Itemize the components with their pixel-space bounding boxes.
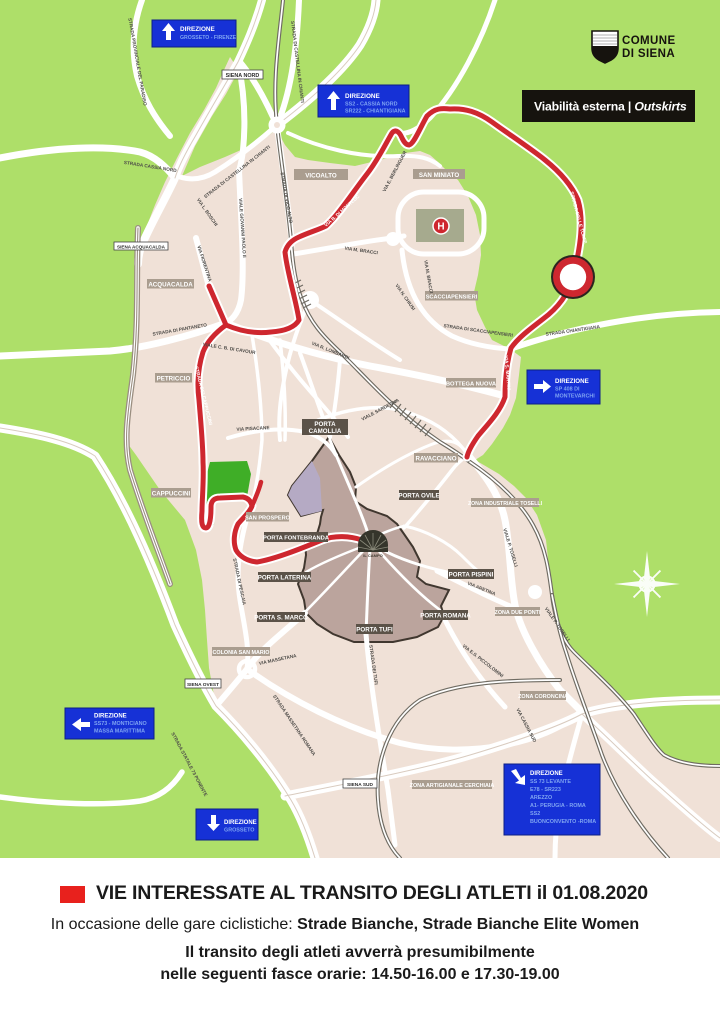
svg-text:A1- PERUGIA - ROMA: A1- PERUGIA - ROMA xyxy=(530,803,586,809)
svg-text:ZONA CORONCINA: ZONA CORONCINA xyxy=(518,694,568,700)
svg-text:COLONIA SAN MARIO: COLONIA SAN MARIO xyxy=(213,650,270,656)
svg-text:PORTA S. MARCO: PORTA S. MARCO xyxy=(254,615,308,622)
svg-text:PETRICCIO: PETRICCIO xyxy=(157,376,191,383)
svg-text:GROSSETO - FIRENZE: GROSSETO - FIRENZE xyxy=(180,35,237,41)
svg-text:MASSA MARITTIMA: MASSA MARITTIMA xyxy=(94,729,145,735)
svg-text:PORTA: PORTA xyxy=(314,421,336,428)
svg-text:GROSSETO: GROSSETO xyxy=(224,828,254,834)
svg-text:SP 408 DI: SP 408 DI xyxy=(555,387,580,393)
svg-text:Viabilità esterna | Outskirts: Viabilità esterna | Outskirts xyxy=(534,100,687,114)
svg-text:DIREZIONE: DIREZIONE xyxy=(345,93,381,100)
svg-text:E78 - SR223: E78 - SR223 xyxy=(530,787,561,793)
svg-text:SCACCIAPENSIERI: SCACCIAPENSIERI xyxy=(426,295,478,301)
svg-text:SS2 - CASSIA NORD: SS2 - CASSIA NORD xyxy=(345,102,398,108)
svg-text:DI SIENA: DI SIENA xyxy=(622,48,675,60)
svg-text:SIENA NORD: SIENA NORD xyxy=(226,73,260,79)
svg-text:DIREZIONE: DIREZIONE xyxy=(530,771,563,777)
svg-text:MONTEVARCHI: MONTEVARCHI xyxy=(555,394,595,400)
svg-text:PORTA FONTEBRANDA: PORTA FONTEBRANDA xyxy=(263,536,330,542)
svg-text:SIENA SUD: SIENA SUD xyxy=(347,782,373,788)
svg-text:PORTA OVILE: PORTA OVILE xyxy=(398,493,439,500)
svg-text:ACQUACALDA: ACQUACALDA xyxy=(148,282,193,289)
svg-text:DIREZIONE: DIREZIONE xyxy=(555,378,589,385)
svg-text:SS 73 LEVANTE: SS 73 LEVANTE xyxy=(530,779,571,785)
svg-text:RAVACCIANO: RAVACCIANO xyxy=(415,456,456,463)
svg-text:PORTA ROMANA: PORTA ROMANA xyxy=(420,613,471,620)
svg-text:SAN PROSPERO: SAN PROSPERO xyxy=(245,516,291,522)
svg-text:SS73 - MONTICIANO: SS73 - MONTICIANO xyxy=(94,721,147,727)
svg-text:CAMOLLIA: CAMOLLIA xyxy=(309,428,342,435)
svg-text:DIREZIONE: DIREZIONE xyxy=(224,820,257,826)
svg-text:BUONCONVENTO -ROMA: BUONCONVENTO -ROMA xyxy=(530,819,596,825)
svg-text:ZONA ARTIGIANALE CERCHIAIA: ZONA ARTIGIANALE CERCHIAIA xyxy=(410,783,495,789)
svg-text:SIENA OVEST: SIENA OVEST xyxy=(187,682,219,688)
svg-text:ZONA DUE PONTI: ZONA DUE PONTI xyxy=(495,610,541,616)
svg-text:IL CAMPO: IL CAMPO xyxy=(363,553,382,558)
svg-text:DIREZIONE: DIREZIONE xyxy=(180,26,216,33)
svg-text:COMUNE: COMUNE xyxy=(622,35,676,47)
svg-text:CAPPUCCINI: CAPPUCCINI xyxy=(152,491,191,498)
svg-text:SAN MINIATO: SAN MINIATO xyxy=(419,172,460,179)
svg-text:PORTA PISPINI: PORTA PISPINI xyxy=(449,572,494,579)
svg-text:BOTTEGA NUOVA: BOTTEGA NUOVA xyxy=(446,382,497,388)
svg-text:AREZZO: AREZZO xyxy=(530,795,552,801)
svg-text:PORTA LATERINA: PORTA LATERINA xyxy=(258,575,312,582)
svg-text:SR222 - CHIANTIGIANA: SR222 - CHIANTIGIANA xyxy=(345,109,406,115)
svg-text:SIENA ACQUACALDA: SIENA ACQUACALDA xyxy=(117,245,166,250)
svg-text:VICOALTO: VICOALTO xyxy=(305,173,337,180)
svg-text:DIREZIONE: DIREZIONE xyxy=(94,714,127,720)
svg-text:SS2: SS2 xyxy=(530,811,540,817)
svg-text:H: H xyxy=(437,222,444,233)
svg-text:PORTA TUFI: PORTA TUFI xyxy=(356,627,393,634)
svg-text:ZONA INDUSTRIALE TOSELLI: ZONA INDUSTRIALE TOSELLI xyxy=(468,501,543,507)
